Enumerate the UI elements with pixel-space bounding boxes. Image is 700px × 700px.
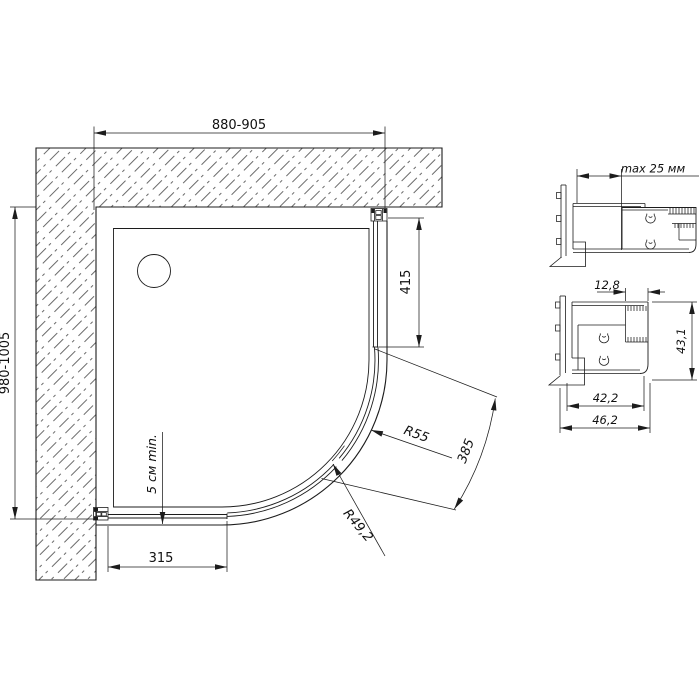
wall-profile-top — [371, 209, 387, 222]
shower-tray — [96, 221, 387, 525]
clearance-note-label: 5 см min. — [144, 434, 159, 494]
dim-height: 43,1 — [652, 302, 697, 380]
dim-width-label: 880-905 — [212, 118, 266, 133]
dim-height-label: 43,1 — [674, 328, 688, 354]
clearance-note: 5 см min. — [144, 432, 163, 524]
radius-outer-leader: R55 — [371, 423, 452, 458]
dim-outer-width-label: 46,2 — [592, 413, 618, 427]
technical-drawing-page: 880-905 980-1005 415 315 385 R55 R49,2 — [0, 0, 700, 700]
glass-clip-icons-bottom — [599, 333, 609, 365]
dim-glass-slot: 12,8 — [594, 278, 665, 301]
dim-adjustment: max 25 мм — [577, 162, 699, 251]
dim-front-panel: 315 — [108, 521, 227, 572]
dim-front-panel-label: 315 — [149, 551, 174, 566]
dim-inner-width: 42,2 — [567, 376, 644, 411]
dim-door-arc-label: 385 — [455, 437, 478, 466]
dim-depth-label: 980-1005 — [0, 332, 13, 395]
serration-top — [668, 208, 696, 240]
curved-door-arcs — [227, 346, 378, 516]
profile-section-top: max 25 мм — [550, 162, 699, 267]
radius-inner-label: R49,2 — [340, 506, 376, 545]
profile-section-bottom: 12,8 43,1 42,2 46,2 — [549, 278, 697, 433]
front-glass-panel — [108, 514, 227, 520]
dim-glass-slot-label: 12,8 — [594, 278, 620, 292]
dim-inner-width-label: 42,2 — [593, 391, 619, 405]
side-glass-panel — [373, 221, 379, 347]
dim-side-panel-label: 415 — [399, 270, 414, 295]
shower-enclosure-drawing: 880-905 980-1005 415 315 385 R55 R49,2 — [0, 0, 700, 700]
serration-bottom — [626, 306, 649, 343]
radius-inner-leader: R49,2 — [333, 464, 385, 556]
tray-outer-edge — [96, 221, 387, 525]
dim-adjustment-label: max 25 мм — [621, 162, 686, 176]
glass-clip-icons-top — [646, 214, 656, 249]
radius-outer-label: R55 — [402, 423, 431, 446]
drain-circle — [138, 255, 171, 288]
dim-side-panel: 415 — [379, 218, 424, 347]
